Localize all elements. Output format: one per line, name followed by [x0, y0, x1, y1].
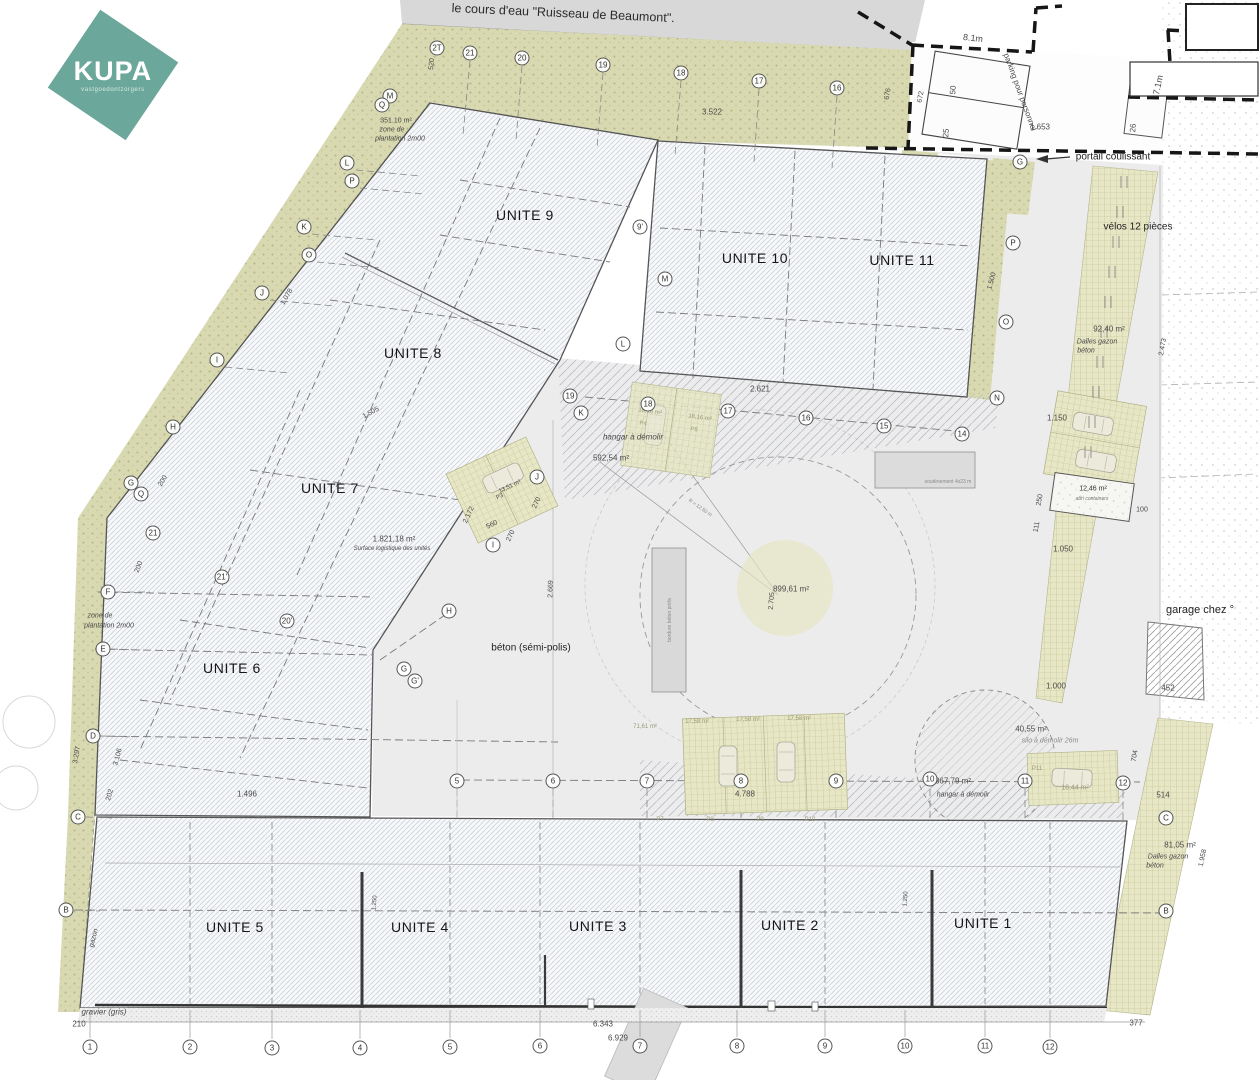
- building-units-10-11: [640, 141, 987, 397]
- neighbour-building-1: [1186, 4, 1258, 50]
- neighbour-garage: [1146, 622, 1204, 700]
- parking-cells-central: [682, 713, 847, 815]
- site-plan-drawing: [0, 0, 1260, 1080]
- staff-parking-stalls: [922, 51, 1030, 149]
- logo-brand-text: KUPA: [74, 57, 153, 84]
- logo: KUPA vastgoedontzorgers: [30, 4, 160, 144]
- parking-cells-hangar: [621, 382, 722, 478]
- gravel-strip: [78, 1008, 1107, 1022]
- neighbour-building-2: [1130, 62, 1258, 96]
- neighbour-parcel-area: [1158, 0, 1260, 725]
- tree-outline: [0, 766, 38, 810]
- retaining-wall-rect: [875, 452, 975, 488]
- site-plan-page: UNITE 9UNITE 10UNITE 11UNITE 8UNITE 7UNI…: [0, 0, 1260, 1080]
- concrete-border-rect: [652, 548, 686, 692]
- logo-diamond-icon: KUPA vastgoedontzorgers: [48, 10, 178, 140]
- logo-tagline-text: vastgoedontzorgers: [74, 86, 153, 92]
- tree-outline: [3, 696, 55, 748]
- tree-canopy: [737, 540, 833, 636]
